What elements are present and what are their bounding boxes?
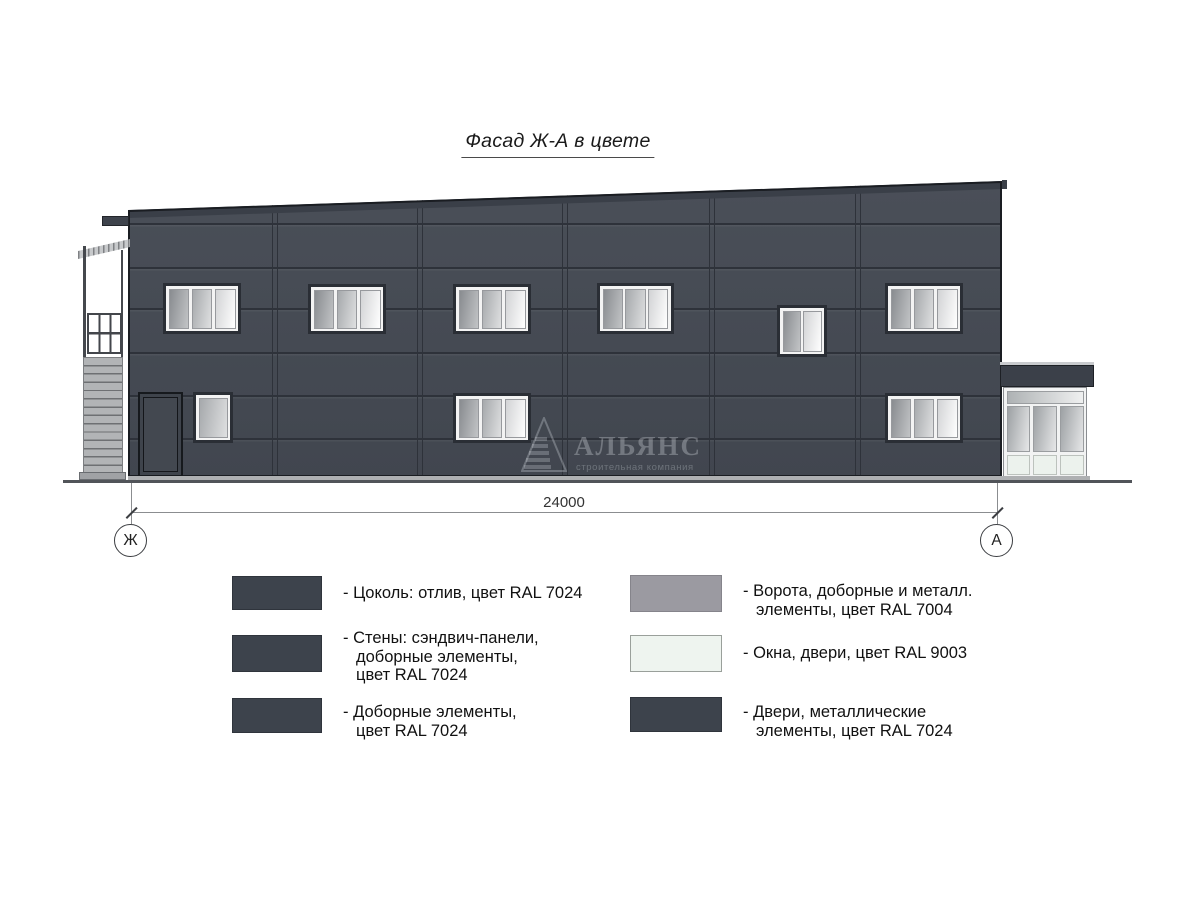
extension-line (997, 483, 998, 524)
stair-flight (83, 357, 123, 473)
legend-label-windows: - Окна, двери, цвет RAL 9003 (743, 644, 1016, 663)
metal-door (138, 392, 183, 477)
legend-label-doors: - Двери, металлические элементы, цвет RA… (743, 703, 1016, 740)
stair-base (79, 472, 126, 480)
window (597, 283, 674, 334)
roof-overhang-right (1002, 180, 1007, 189)
roof-flashing-and-outline (128, 181, 1002, 477)
window (308, 284, 386, 334)
dimension-value: 24000 (543, 494, 585, 511)
facade-drawing-sheet: Фасад Ж-А в цвете (0, 0, 1200, 900)
axis-marker-right: А (980, 524, 1013, 557)
vestibule-roof (1000, 365, 1094, 387)
window (163, 283, 241, 334)
window (885, 393, 963, 443)
legend-swatch-walls (232, 635, 322, 672)
drawing-title: Фасад Ж-А в цвете (461, 130, 654, 158)
axis-marker-left: Ж (114, 524, 147, 557)
window (453, 284, 531, 334)
building-facade (128, 181, 1002, 477)
legend-swatch-trim (232, 698, 322, 733)
legend-label-trim: - Доборные элементы, цвет RAL 7024 (343, 703, 616, 740)
legend-swatch-plinth (232, 576, 322, 610)
legend-label-gates: - Ворота, доборные и металл. элементы, ц… (743, 582, 1016, 619)
legend-swatch-windows (630, 635, 722, 672)
window (885, 283, 963, 334)
roof-overhang-left (102, 216, 129, 226)
window-small (193, 392, 233, 443)
legend-swatch-doors (630, 697, 722, 732)
stair-railing (87, 313, 122, 354)
ground-line (63, 480, 1132, 483)
vestibule-glazing (1003, 387, 1087, 477)
legend-label-plinth: - Цоколь: отлив, цвет RAL 7024 (343, 584, 616, 603)
legend-label-walls: - Стены: сэндвич-панели, доборные элемен… (343, 629, 616, 685)
dimension-line (131, 512, 997, 513)
window-small (777, 305, 827, 357)
window (453, 393, 531, 443)
legend-swatch-gates (630, 575, 722, 612)
extension-line (131, 483, 132, 524)
